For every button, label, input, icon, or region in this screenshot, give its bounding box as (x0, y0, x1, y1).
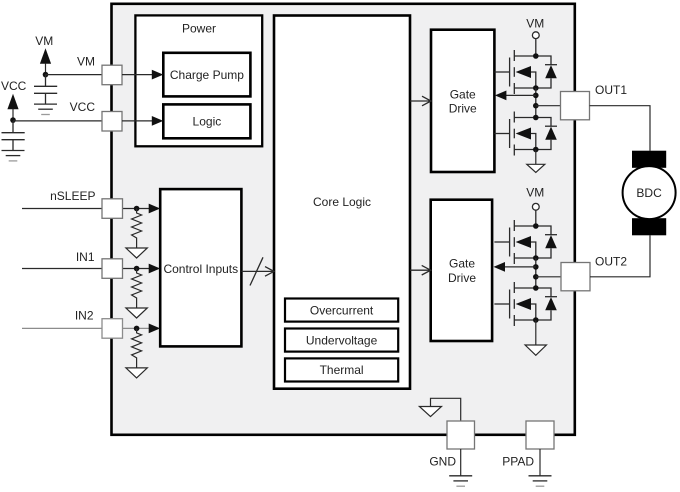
svg-text:VM: VM (77, 54, 95, 68)
svg-text:OUT2: OUT2 (595, 254, 627, 268)
svg-text:BDC: BDC (636, 186, 662, 200)
svg-text:Gate: Gate (450, 87, 476, 101)
svg-text:VCC: VCC (1, 79, 27, 93)
svg-text:Undervoltage: Undervoltage (306, 333, 378, 347)
svg-text:Charge Pump: Charge Pump (170, 68, 244, 82)
svg-text:nSLEEP: nSLEEP (50, 189, 95, 203)
svg-text:Control Inputs: Control Inputs (163, 262, 238, 276)
svg-text:Gate: Gate (449, 257, 475, 271)
svg-text:IN2: IN2 (75, 309, 94, 323)
svg-text:VM: VM (526, 186, 544, 200)
svg-text:Drive: Drive (449, 101, 477, 115)
svg-text:IN1: IN1 (76, 250, 95, 264)
svg-text:VM: VM (35, 34, 53, 48)
svg-text:Overcurrent: Overcurrent (310, 303, 374, 317)
svg-text:Drive: Drive (448, 271, 476, 285)
svg-text:OUT1: OUT1 (595, 83, 627, 97)
svg-text:Logic: Logic (193, 115, 222, 129)
svg-text:VM: VM (526, 16, 544, 30)
svg-text:Core Logic: Core Logic (313, 195, 371, 209)
svg-text:Power: Power (182, 21, 216, 35)
svg-text:PPAD: PPAD (502, 454, 534, 468)
svg-text:GND: GND (429, 454, 456, 468)
svg-text:VCC: VCC (70, 100, 96, 114)
svg-text:Thermal: Thermal (320, 363, 364, 377)
